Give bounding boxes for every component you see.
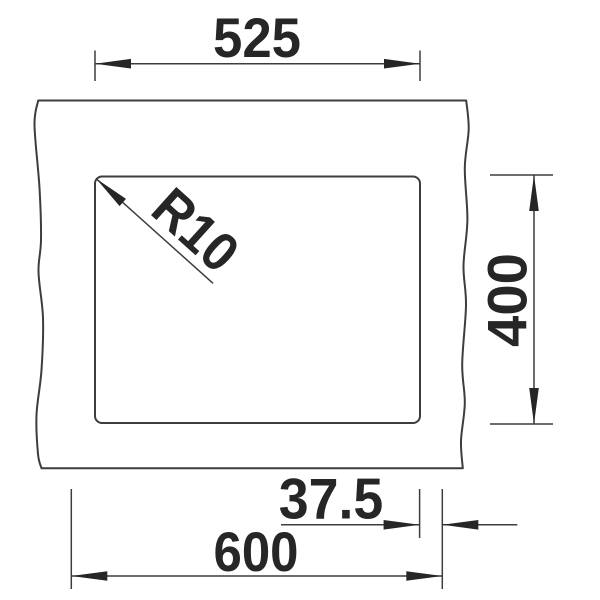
svg-text:600: 600 bbox=[214, 520, 299, 583]
svg-text:400: 400 bbox=[476, 253, 539, 347]
svg-text:525: 525 bbox=[213, 6, 301, 69]
